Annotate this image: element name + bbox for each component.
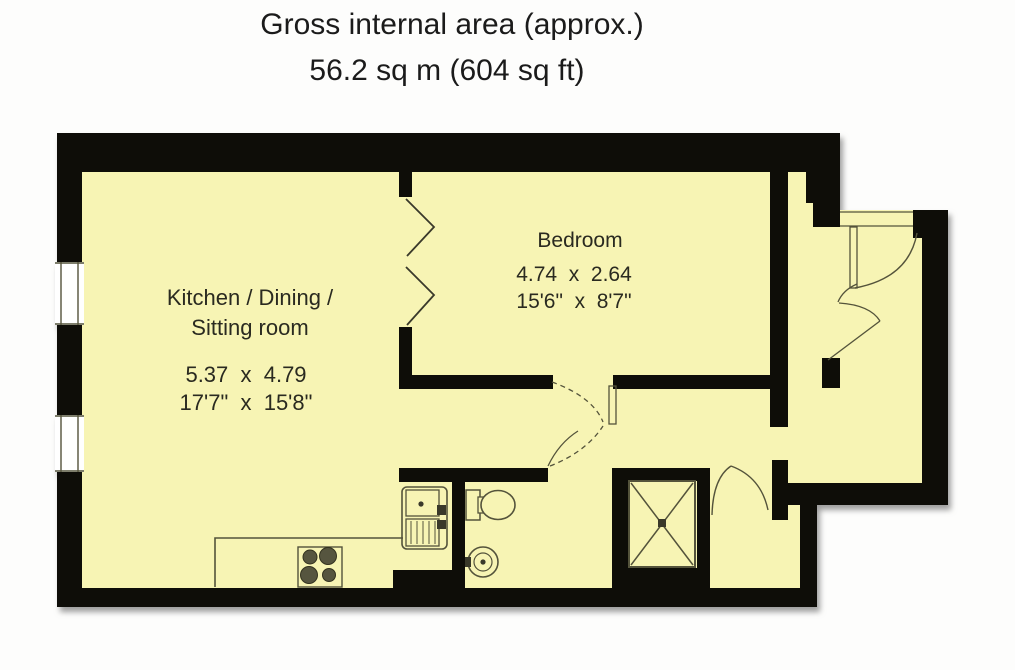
wall-bathroom-top bbox=[399, 468, 548, 482]
wall-bedroom-south-a bbox=[399, 375, 553, 389]
wall-south-hall bbox=[788, 483, 948, 505]
wall-hall-stub bbox=[822, 358, 840, 388]
title-line-2: 56.2 sq m (604 sq ft) bbox=[309, 54, 584, 87]
shower bbox=[629, 481, 695, 567]
floorplan-image: Gross internal area (approx.) 56.2 sq m … bbox=[0, 0, 1015, 670]
wall-bedroom-south-b bbox=[613, 375, 774, 389]
bedroom-label: Bedroom bbox=[537, 229, 622, 252]
window-1 bbox=[55, 262, 84, 325]
wall-left bbox=[57, 133, 82, 607]
bedroom-dims-imperial: 15'6" x 8'7" bbox=[516, 290, 631, 313]
building: Kitchen / Dining / Sitting room 5.37 x 4… bbox=[55, 133, 948, 607]
wall-shower-top bbox=[612, 468, 710, 481]
wall-closet-jamb bbox=[772, 460, 788, 520]
wall-below-shower bbox=[628, 568, 710, 607]
kitchen-dims-imperial: 17'7" x 15'8" bbox=[180, 390, 313, 415]
wall-shower-left bbox=[612, 468, 628, 588]
wall-bathroom-left bbox=[452, 482, 465, 588]
kitchen-label-line1: Kitchen / Dining / bbox=[167, 285, 334, 310]
wall-divider-stub bbox=[399, 172, 412, 197]
wall-hall-west bbox=[770, 172, 788, 427]
shower-drain bbox=[658, 519, 666, 527]
wall-top-right-column bbox=[806, 172, 840, 203]
wall-entry-step bbox=[813, 203, 840, 227]
bedroom-dims-metric: 4.74 x 2.64 bbox=[516, 263, 632, 286]
window-2 bbox=[55, 415, 84, 472]
kitchen-dims-metric: 5.37 x 4.79 bbox=[185, 362, 306, 387]
floorplan-canvas: Gross internal area (approx.) 56.2 sq m … bbox=[0, 0, 1015, 670]
wall-east bbox=[922, 210, 948, 505]
toilet bbox=[466, 490, 515, 520]
title-line-1: Gross internal area (approx.) bbox=[260, 8, 644, 41]
wall-top bbox=[57, 133, 840, 172]
kitchen-label-line2: Sitting room bbox=[191, 315, 308, 340]
